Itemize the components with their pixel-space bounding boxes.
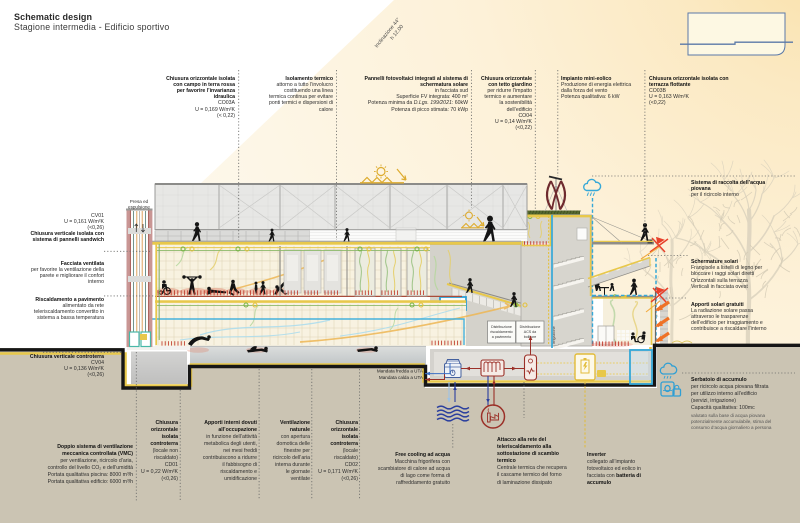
svg-text:ACS da: ACS da: [524, 330, 536, 334]
svg-text:Presa ed: Presa ed: [130, 199, 149, 204]
svg-text:Mandata fredda a UTA: Mandata fredda a UTA: [377, 369, 424, 374]
svg-text:riscaldamento: riscaldamento: [490, 330, 512, 334]
svg-text:espulsione: espulsione: [128, 205, 150, 210]
svg-text:Distribuzione: Distribuzione: [520, 325, 541, 329]
svg-text:Distribuzione: Distribuzione: [491, 325, 512, 329]
svg-text:a pavimento: a pavimento: [492, 335, 512, 339]
svg-text:Mandata calda a UTA: Mandata calda a UTA: [379, 375, 424, 380]
